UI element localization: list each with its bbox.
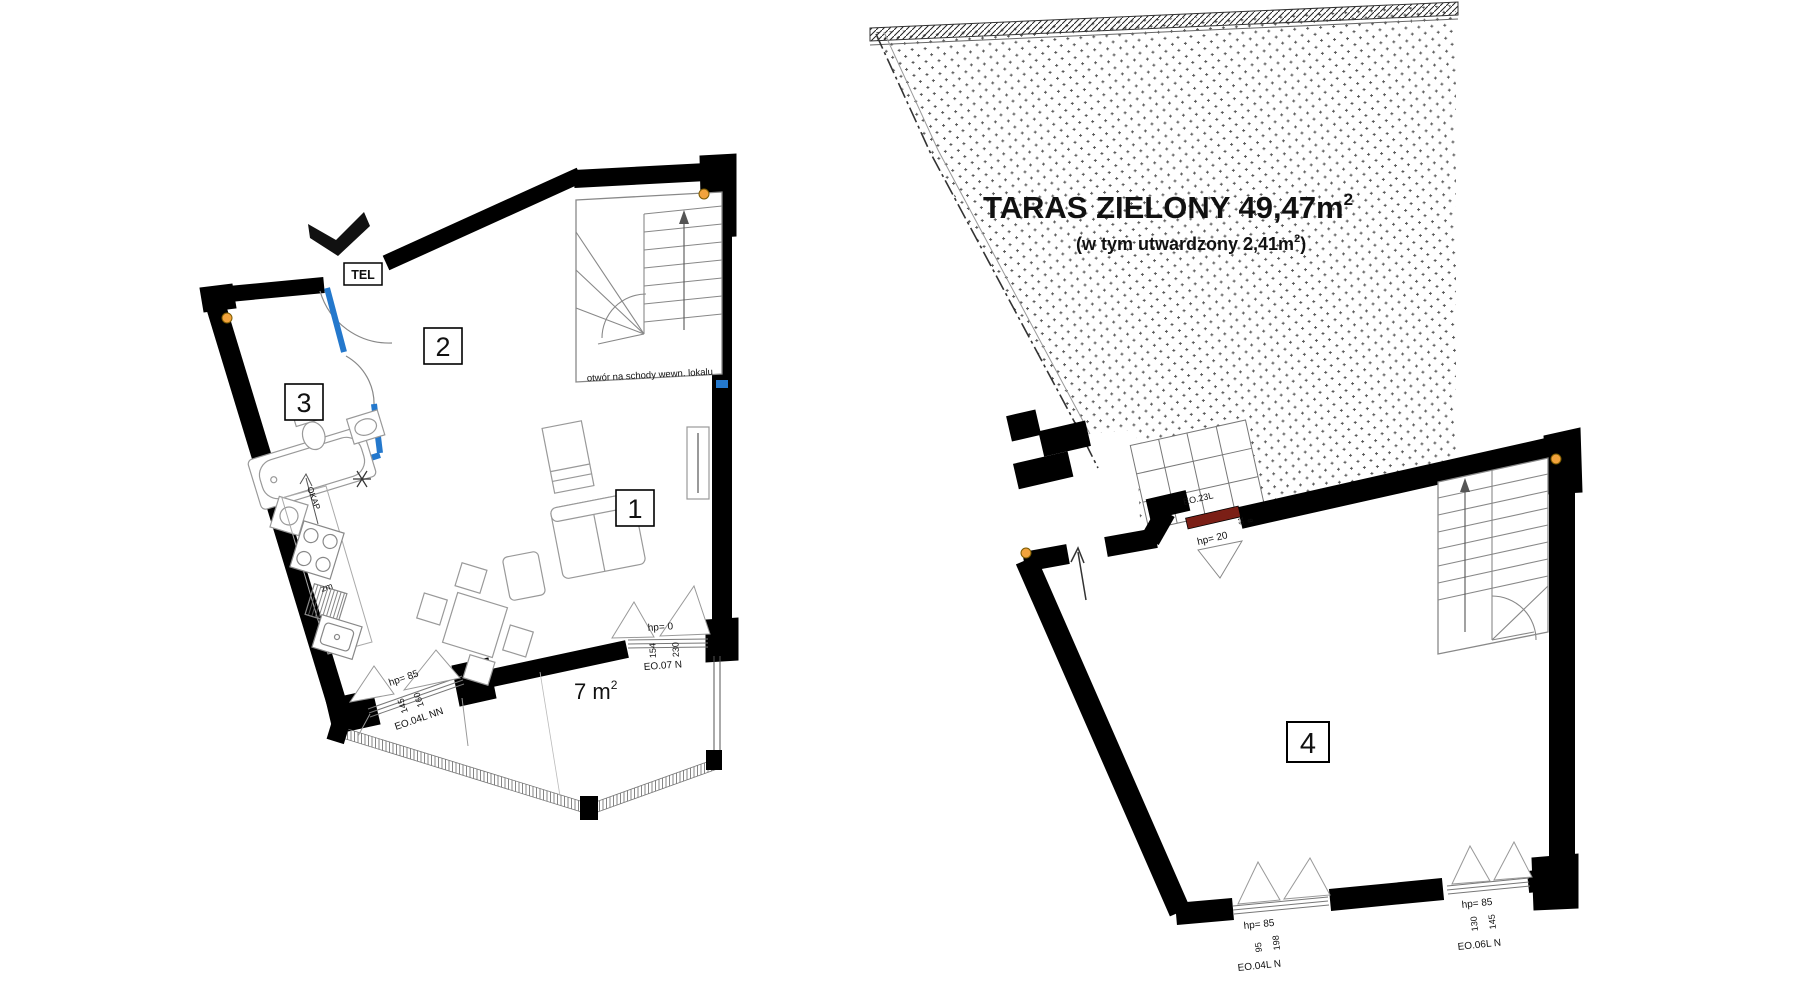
room-label-1-text: 1 xyxy=(627,494,642,524)
tel-label: TEL xyxy=(351,268,375,282)
balcony-area-value: 7 m xyxy=(574,679,611,704)
window-triangle xyxy=(1452,846,1490,884)
terrace-title: TARAS ZIELONY 49,47m2 xyxy=(983,190,1353,225)
balcony-post xyxy=(580,796,598,820)
right-floor-plan: EO.23L 61 8 hp= 20 xyxy=(870,2,1582,974)
room-label-3-text: 3 xyxy=(296,388,311,418)
balcony-area-label: 7 m2 xyxy=(574,678,618,704)
terrace-title-main: TARAS ZIELONY 49,47m xyxy=(983,190,1344,225)
terrace-door-arrow xyxy=(1071,548,1086,600)
window-eo04ln: hp= 85 95 198 EO.04L N xyxy=(1233,858,1330,974)
entrance-chevron-icon xyxy=(308,212,370,256)
window-eo04ln-id: EO.04L N xyxy=(1237,958,1281,973)
balcony-post xyxy=(706,750,722,770)
armchair xyxy=(502,551,546,601)
window-eo07n-dim-b: 230 xyxy=(670,642,681,657)
marker-dot xyxy=(1021,548,1031,558)
window-eo07n-hp: hp= 0 xyxy=(647,621,673,634)
terrace-subtitle: (w tym utwardzony 2,41m2) xyxy=(1076,233,1306,254)
tel-box: TEL xyxy=(344,263,382,285)
wardrobe xyxy=(687,427,709,499)
blue-wall-mark xyxy=(716,380,728,388)
room-label-2-text: 2 xyxy=(435,332,450,362)
terrace-subtitle-post: ) xyxy=(1300,234,1306,254)
left-floor-plan: otwór na schody wewn. lokalu TEL xyxy=(200,154,738,820)
terrace-subtitle-pre: (w tym utwardzony 2,41m xyxy=(1076,234,1294,254)
floorplan-canvas: EO.23L 61 8 hp= 20 xyxy=(0,0,1800,1008)
room-label-3: 3 xyxy=(285,384,323,420)
room4-staircase xyxy=(1438,458,1548,654)
window-eo04ln-dim-a: 95 xyxy=(1253,942,1264,953)
bathroom-door-arc xyxy=(346,356,374,406)
window-triangle xyxy=(1238,862,1280,904)
marker-dot xyxy=(699,189,709,199)
marker-dot xyxy=(222,313,232,323)
living-room-furniture xyxy=(502,421,709,601)
window-triangle xyxy=(1494,842,1532,880)
room-label-2: 2 xyxy=(424,328,462,364)
left-staircase xyxy=(576,192,722,382)
room-label-4-text: 4 xyxy=(1300,728,1316,760)
room-label-1: 1 xyxy=(616,490,654,526)
floorplan-document: EO.23L 61 8 hp= 20 xyxy=(0,0,1800,1008)
window-triangle xyxy=(1284,858,1330,899)
side-table xyxy=(542,421,594,493)
window-eo06ln-dim-b: 145 xyxy=(1486,914,1498,930)
window-eo07n: hp= 0 154 230 EO.07 N xyxy=(612,586,710,673)
room-label-4: 4 xyxy=(1287,722,1329,762)
window-eo04ln-dim-b: 198 xyxy=(1270,935,1282,951)
window-eo06ln-id: EO.06L N xyxy=(1457,937,1501,952)
window-eo07n-id: EO.07 N xyxy=(643,659,682,673)
window-eo06ln: hp= 85 130 145 EO.06L N xyxy=(1447,842,1532,953)
window-eo07n-dim-a: 154 xyxy=(647,643,658,658)
window-eo06ln-hp: hp= 85 xyxy=(1461,897,1493,911)
window-triangle xyxy=(350,666,394,702)
balcony-area-sup: 2 xyxy=(611,678,618,692)
terrace-title-sup: 2 xyxy=(1344,190,1353,209)
balcony: 7 m2 xyxy=(327,656,722,820)
marker-dot xyxy=(1551,454,1561,464)
window-eo04ln-hp: hp= 85 xyxy=(1243,918,1275,932)
window-eo06ln-dim-a: 130 xyxy=(1468,916,1480,932)
